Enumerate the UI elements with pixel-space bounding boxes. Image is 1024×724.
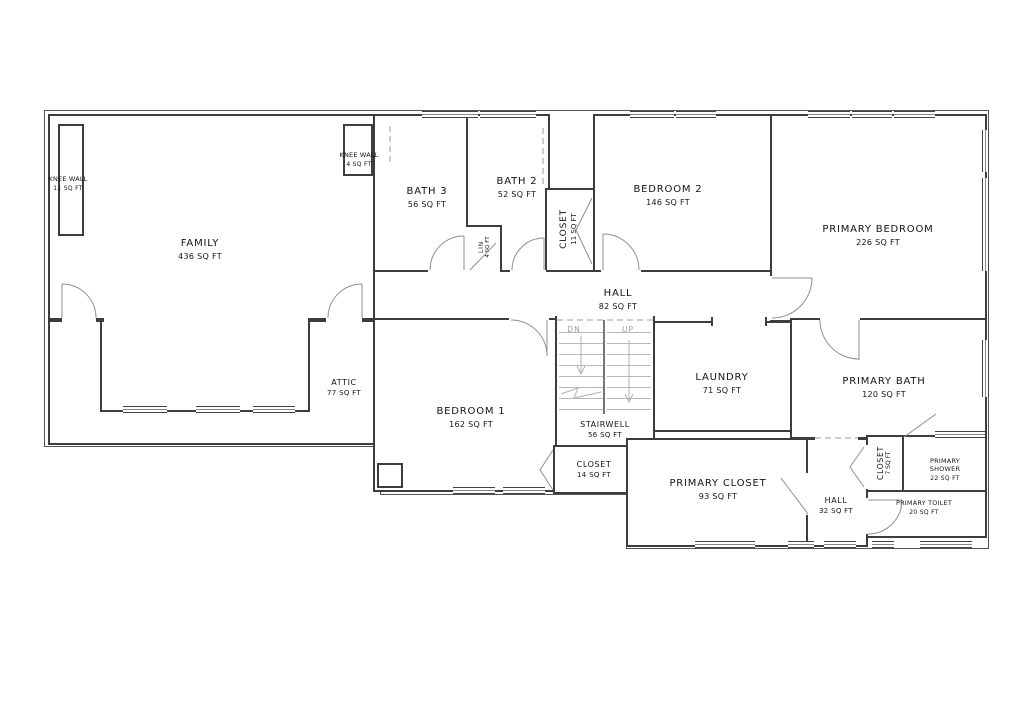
room-name: KNEE WALL — [336, 152, 382, 160]
window — [503, 487, 545, 494]
label-family: FAMILY 436 SQ FT — [100, 238, 300, 262]
label-stairwell: STAIRWELL 56 SQ FT — [557, 420, 653, 440]
window — [894, 111, 935, 118]
window — [196, 406, 240, 413]
door-opening — [326, 318, 362, 322]
window — [253, 406, 295, 413]
room-name: LIN — [478, 241, 485, 253]
window — [852, 111, 892, 118]
window — [480, 111, 536, 118]
label-primary-hall-closet: CLOSET 7 SQ FT — [871, 434, 897, 492]
label-bath3: BATH 3 56 SQ FT — [377, 186, 477, 210]
room-name: BEDROOM 2 — [593, 184, 743, 197]
room-name: STAIRWELL — [557, 420, 653, 430]
stair-flight-down — [559, 322, 603, 414]
label-primary-toilet: PRIMARY TOILET 20 SQ FT — [892, 500, 956, 516]
label-linen: LIN 4 SQ FT — [475, 219, 495, 275]
shower-glass — [935, 431, 985, 438]
door-jamb — [765, 317, 767, 326]
room-area: 7 SQ FT — [885, 451, 892, 474]
label-bedroom2: BEDROOM 2 146 SQ FT — [593, 184, 743, 208]
window — [695, 541, 755, 548]
stair-dn-label: DN — [562, 325, 586, 334]
wall-stub — [48, 318, 62, 322]
room-area: 20 SQ FT — [892, 509, 956, 516]
room-area: 56 SQ FT — [557, 431, 653, 440]
label-knee-wall-top: KNEE WALL 4 SQ FT — [336, 152, 382, 168]
room-area: 4 SQ FT — [485, 236, 492, 257]
room-name: HALL — [806, 496, 866, 506]
door-opening — [866, 498, 870, 534]
label-primary-bath: PRIMARY BATH 120 SQ FT — [809, 376, 959, 400]
room-area: 14 SQ FT — [557, 471, 631, 480]
label-bedroom1: BEDROOM 1 162 SQ FT — [396, 406, 546, 430]
window — [453, 487, 495, 494]
stair-rail — [603, 320, 605, 414]
window — [422, 111, 478, 118]
room-name: CLOSET — [557, 460, 631, 470]
window — [872, 541, 894, 548]
room-name: PRIMARY BATH — [809, 376, 959, 389]
room-area: 56 SQ FT — [377, 200, 477, 210]
room-area: 22 SQ FT — [917, 475, 973, 482]
room-name: ATTIC — [309, 378, 379, 388]
room-area: 120 SQ FT — [809, 390, 959, 400]
room-name: PRIMARY CLOSET — [643, 478, 793, 491]
window — [982, 340, 989, 397]
room-name: PRIMARY TOILET — [892, 500, 956, 508]
label-primary-bedroom: PRIMARY BEDROOM 226 SQ FT — [778, 224, 978, 248]
door-opening — [601, 270, 641, 274]
knee-wall-top-box — [343, 124, 373, 176]
stair-flight-up — [607, 322, 651, 414]
door-opening — [770, 276, 774, 320]
room-family — [48, 114, 375, 320]
exterior-wall-line — [380, 494, 627, 495]
window — [630, 111, 674, 118]
room-area: 82 SQ FT — [568, 302, 668, 312]
door-opening — [62, 318, 96, 322]
label-hall-upper: HALL 82 SQ FT — [568, 288, 668, 312]
room-name: HALL — [568, 288, 668, 301]
family-window-bay — [100, 318, 310, 412]
window — [824, 541, 856, 548]
room-area: 93 SQ FT — [643, 492, 793, 502]
label-hall-closet: CLOSET 11 SQ FT — [551, 187, 587, 271]
door-opening — [815, 437, 858, 441]
window — [982, 130, 989, 172]
window — [920, 541, 972, 548]
stair-hall-opening — [557, 316, 653, 320]
room-area: 32 SQ FT — [806, 507, 866, 516]
room-area: 162 SQ FT — [396, 420, 546, 430]
window — [676, 111, 716, 118]
label-hall-lower: HALL 32 SQ FT — [806, 496, 866, 516]
room-name: CLOSET — [559, 209, 570, 249]
exterior-wall-line — [44, 110, 45, 447]
room-name: BATH 3 — [377, 186, 477, 199]
room-area: 226 SQ FT — [778, 238, 978, 248]
room-area: 436 SQ FT — [100, 252, 300, 262]
stair-up-label: UP — [616, 325, 640, 334]
door-opening — [713, 321, 765, 325]
room-name: LAUNDRY — [657, 372, 787, 385]
room-area: 11 SQ FT — [36, 185, 100, 192]
room-area: 71 SQ FT — [657, 386, 787, 396]
wall-stub — [96, 318, 104, 322]
room-name: BEDROOM 1 — [396, 406, 546, 419]
label-primary-shower: PRIMARY SHOWER 22 SQ FT — [917, 458, 973, 482]
label-primary-closet: PRIMARY CLOSET 93 SQ FT — [643, 478, 793, 502]
room-name: FAMILY — [100, 238, 300, 251]
exterior-wall-line — [626, 548, 989, 549]
window — [788, 541, 814, 548]
label-attic: ATTIC 77 SQ FT — [309, 378, 379, 398]
label-laundry: LAUNDRY 71 SQ FT — [657, 372, 787, 396]
room-name: PRIMARY SHOWER — [917, 458, 973, 474]
wall-stub — [308, 318, 326, 322]
exterior-wall-line — [44, 446, 381, 447]
bedroom1-chase-box — [377, 463, 403, 488]
window — [982, 178, 989, 271]
door-opening — [820, 318, 860, 322]
room-hall-lower — [806, 438, 868, 547]
door-opening — [510, 270, 546, 274]
room-area: 4 SQ FT — [336, 161, 382, 168]
window — [808, 111, 850, 118]
room-area: 77 SQ FT — [309, 389, 379, 398]
label-knee-wall-left: KNEE WALL 11 SQ FT — [36, 176, 100, 192]
door-opening — [509, 318, 549, 322]
room-area: 146 SQ FT — [593, 198, 743, 208]
exterior-wall-line — [988, 110, 989, 549]
floor-plan: DN UP FAMILY 436 SQ FT KNEE WALL 11 SQ F… — [0, 0, 1024, 724]
label-bedroom1-closet: CLOSET 14 SQ FT — [557, 460, 631, 480]
window — [123, 406, 167, 413]
door-opening — [866, 445, 870, 489]
room-area: 11 SQ FT — [570, 213, 578, 245]
room-primary-bedroom — [770, 114, 987, 322]
room-name: KNEE WALL — [36, 176, 100, 184]
room-name: CLOSET — [876, 446, 885, 480]
door-opening — [428, 270, 466, 274]
room-name: PRIMARY BEDROOM — [778, 224, 978, 237]
door-jamb — [711, 317, 713, 326]
